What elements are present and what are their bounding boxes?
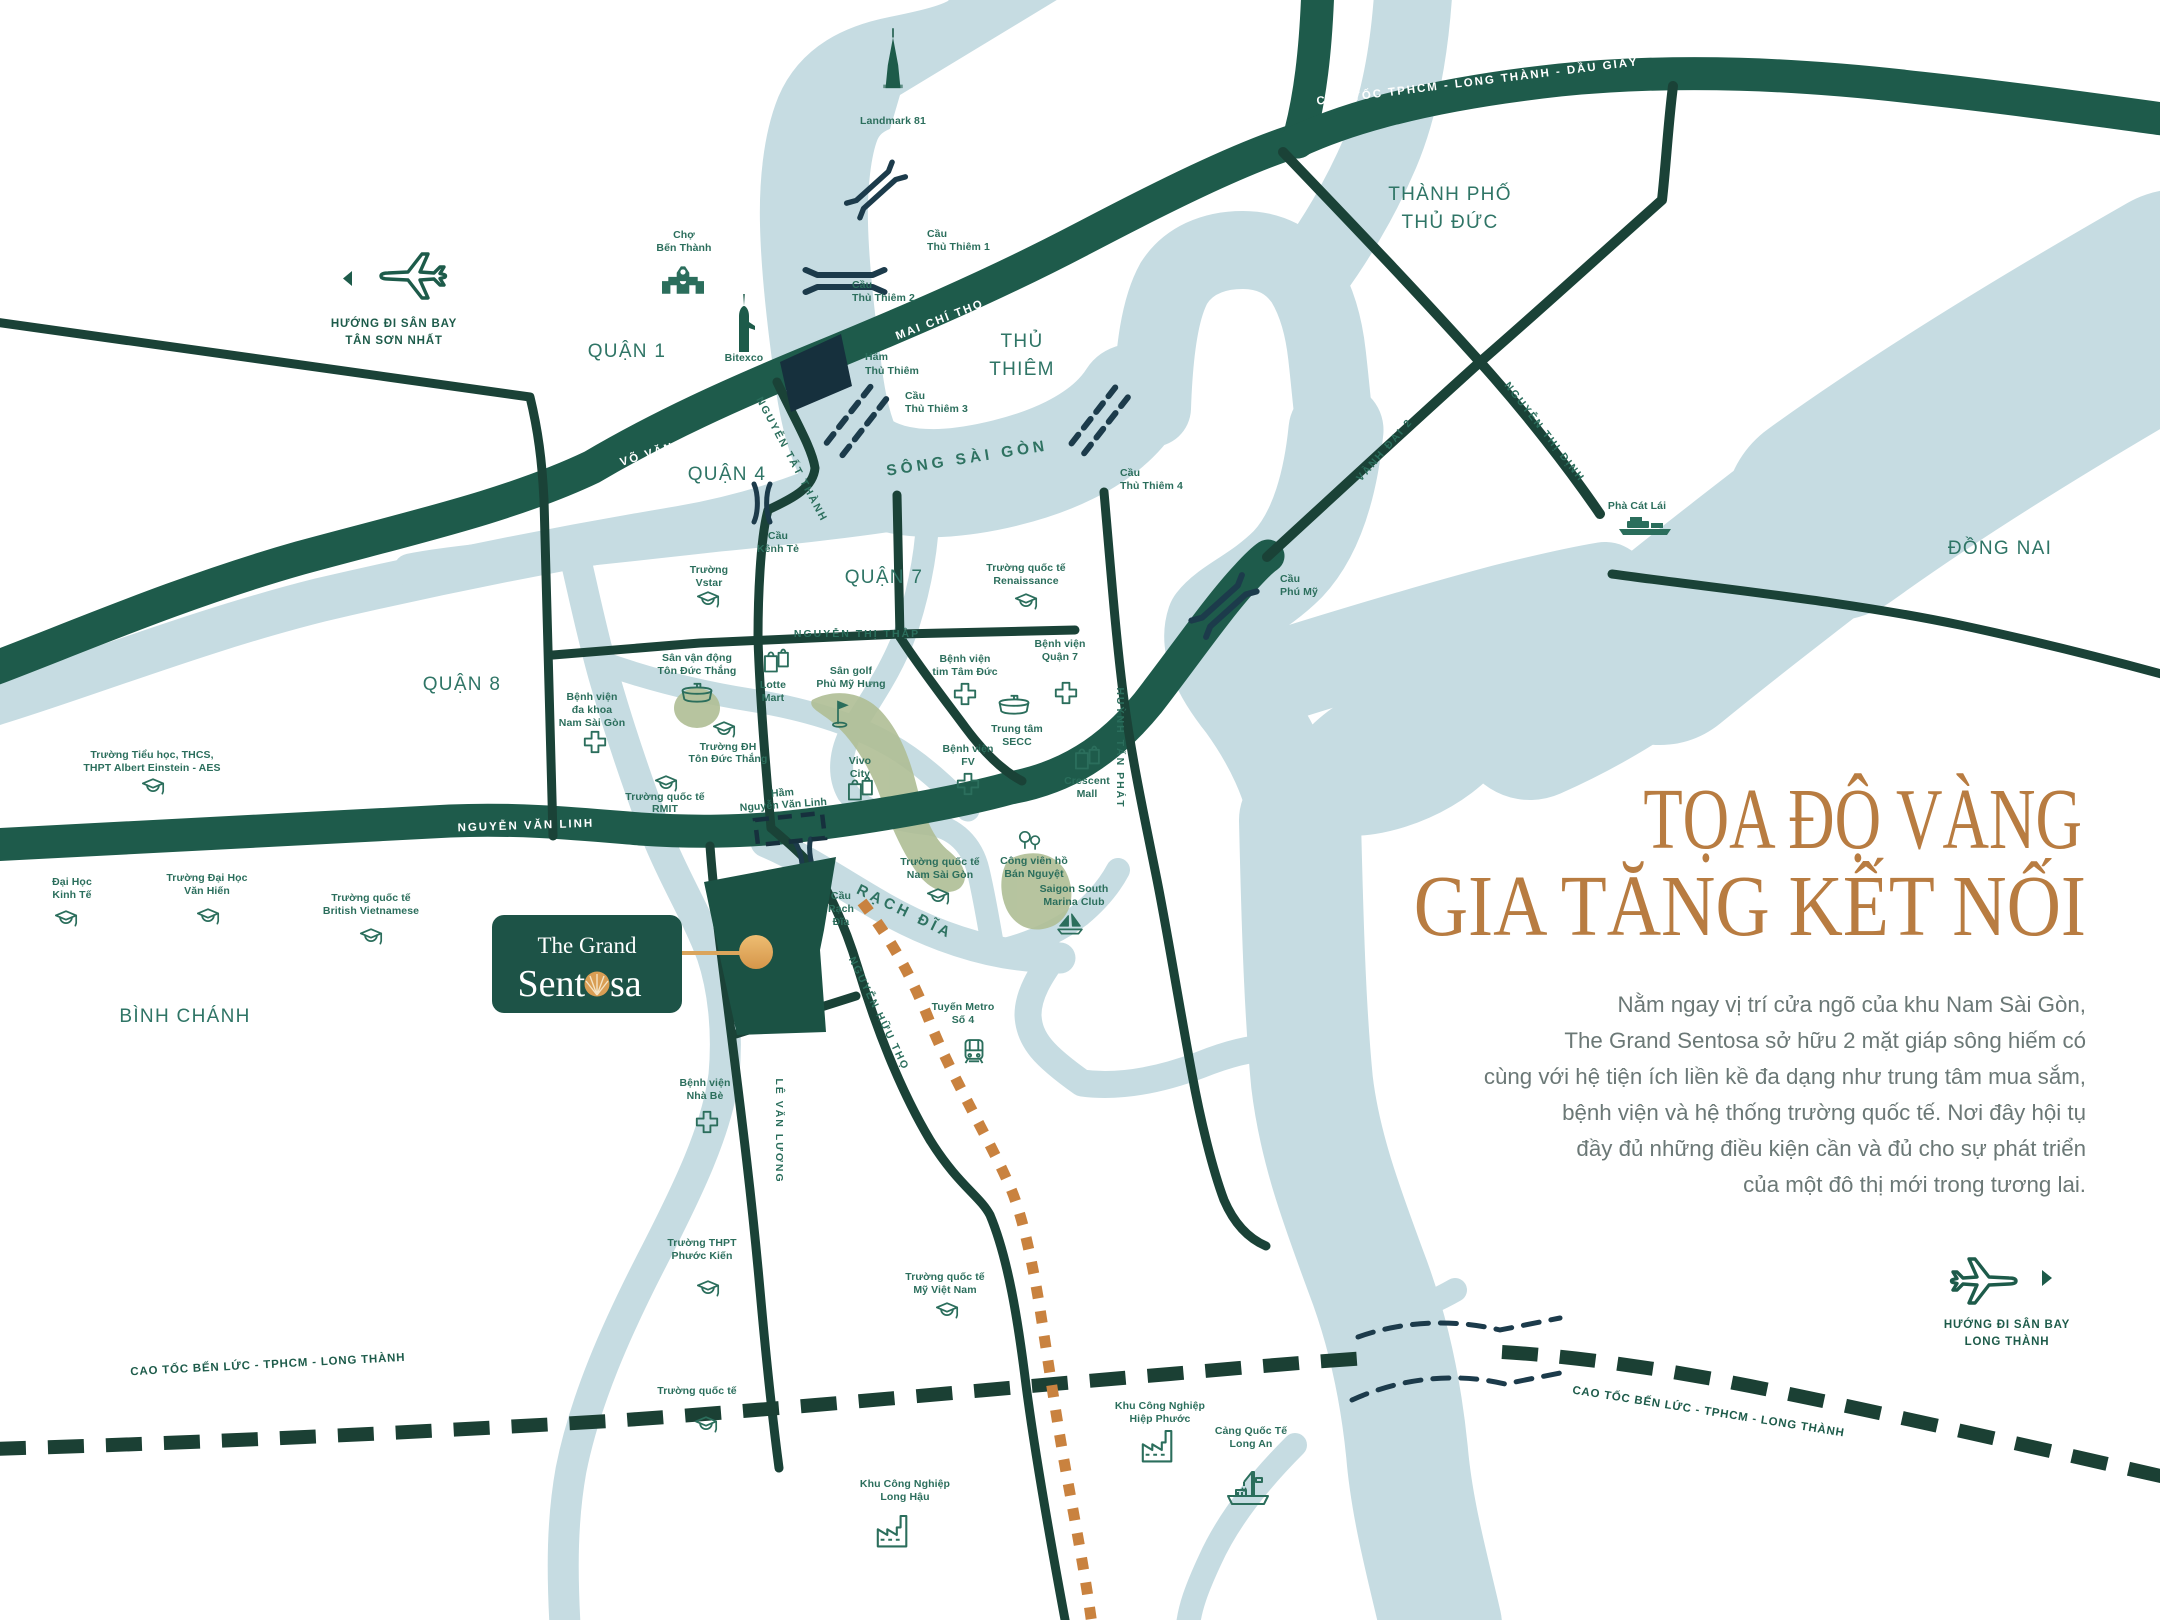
svg-text:HUỲNH TẤN PHÁT: HUỲNH TẤN PHÁT	[1114, 687, 1127, 808]
svg-text:Thủ Thiêm 4: Thủ Thiêm 4	[1120, 480, 1183, 492]
svg-text:Thủ Thiêm 2: Thủ Thiêm 2	[852, 292, 915, 304]
svg-text:của một đô thị mới trong tương: của một đô thị mới trong tương lai.	[1743, 1172, 2086, 1197]
svg-text:SECC: SECC	[1002, 736, 1032, 748]
svg-text:Trường Tiểu học, THCS,: Trường Tiểu học, THCS,	[90, 749, 213, 761]
svg-text:Bán Nguyệt: Bán Nguyệt	[1004, 868, 1064, 880]
svg-text:Phủ Mỹ Hưng: Phủ Mỹ Hưng	[816, 678, 885, 690]
svg-text:Trường quốc tế: Trường quốc tế	[900, 856, 980, 868]
svg-text:Bệnh viện: Bệnh viện	[939, 653, 990, 665]
svg-text:đầy đủ những điều kiện cần và: đầy đủ những điều kiện cần và đủ cho sự …	[1576, 1136, 2086, 1161]
svg-text:Phà Cát Lái: Phà Cát Lái	[1608, 500, 1666, 512]
svg-text:Mall: Mall	[1077, 788, 1098, 800]
svg-text:Thủ Thiêm: Thủ Thiêm	[865, 365, 919, 377]
svg-text:Saigon South: Saigon South	[1040, 883, 1109, 895]
svg-text:Thủ Thiêm 1: Thủ Thiêm 1	[927, 241, 990, 253]
svg-text:Long An: Long An	[1230, 1438, 1273, 1450]
svg-text:Tôn Đức Thắng: Tôn Đức Thắng	[658, 664, 737, 677]
svg-text:Hiệp Phước: Hiệp Phước	[1130, 1413, 1191, 1425]
svg-text:Khu Công Nghiệp: Khu Công Nghiệp	[860, 1478, 950, 1490]
svg-text:Vstar: Vstar	[696, 577, 723, 589]
svg-text:BÌNH CHÁNH: BÌNH CHÁNH	[119, 1006, 250, 1027]
svg-text:HƯỚNG ĐI SÂN BAY: HƯỚNG ĐI SÂN BAY	[1944, 1318, 2070, 1331]
svg-text:Bitexco: Bitexco	[725, 352, 764, 364]
svg-text:Chợ: Chợ	[673, 229, 695, 241]
svg-text:Cầu: Cầu	[831, 890, 851, 902]
svg-text:Sân vận động: Sân vận động	[662, 652, 732, 664]
svg-text:Marina Club: Marina Club	[1043, 896, 1104, 908]
svg-text:THPT Albert Einstein - AES: THPT Albert Einstein - AES	[83, 762, 220, 774]
svg-text:Bệnh viện: Bệnh viện	[566, 691, 617, 703]
svg-text:Trường Đại Học: Trường Đại Học	[166, 872, 247, 884]
svg-text:Số 4: Số 4	[952, 1014, 975, 1026]
svg-text:LONG THÀNH: LONG THÀNH	[1965, 1335, 2050, 1348]
svg-text:The Grand: The Grand	[538, 933, 637, 958]
svg-text:sa: sa	[610, 963, 642, 1005]
svg-text:Bệnh viện: Bệnh viện	[679, 1077, 730, 1089]
svg-text:Mỹ Việt Nam: Mỹ Việt Nam	[913, 1284, 976, 1296]
svg-text:Cầu: Cầu	[1280, 573, 1300, 585]
svg-text:Vivo: Vivo	[849, 755, 871, 767]
svg-text:Trường quốc tế: Trường quốc tế	[657, 1385, 737, 1397]
svg-text:Phú Mỹ: Phú Mỹ	[1280, 586, 1318, 598]
svg-text:NGUYỄN THỊ THẬP: NGUYỄN THỊ THẬP	[794, 627, 920, 640]
svg-text:Trường: Trường	[690, 564, 728, 576]
svg-text:Trường THPT: Trường THPT	[667, 1237, 737, 1249]
svg-text:Nằm ngay vị trí cửa ngõ của kh: Nằm ngay vị trí cửa ngõ của khu Nam Sài …	[1617, 992, 2086, 1017]
svg-text:British Vietnamese: British Vietnamese	[323, 905, 419, 917]
svg-text:bệnh viện và hệ thống trường q: bệnh viện và hệ thống trường quốc tế. Nơ…	[1562, 1100, 2086, 1125]
svg-text:Phước Kiến: Phước Kiến	[672, 1250, 733, 1262]
svg-text:cùng với hệ tiện ích liền kề đ: cùng với hệ tiện ích liền kề đa dạng như…	[1484, 1064, 2086, 1089]
svg-text:Long Hậu: Long Hậu	[880, 1491, 929, 1503]
svg-text:Kinh Tế: Kinh Tế	[52, 889, 91, 901]
svg-text:Cảng Quốc Tế: Cảng Quốc Tế	[1215, 1425, 1287, 1437]
svg-text:GIA TĂNG KẾT NỐI: GIA TĂNG KẾT NỐI	[1414, 858, 2086, 954]
svg-text:LÊ VĂN LƯƠNG: LÊ VĂN LƯƠNG	[773, 1078, 786, 1183]
svg-text:Renaissance: Renaissance	[993, 575, 1058, 587]
svg-text:THIÊM: THIÊM	[989, 358, 1055, 380]
svg-text:Quận 7: Quận 7	[1042, 651, 1078, 663]
svg-text:Trường quốc tế: Trường quốc tế	[331, 892, 411, 904]
svg-text:đa khoa: đa khoa	[572, 704, 612, 716]
svg-text:Cầu: Cầu	[852, 279, 872, 291]
svg-text:THỦ: THỦ	[1001, 330, 1044, 352]
svg-text:Văn Hiến: Văn Hiến	[184, 885, 230, 897]
svg-text:Trường ĐH: Trường ĐH	[700, 741, 757, 753]
svg-text:Mart: Mart	[762, 692, 785, 704]
svg-text:Landmark 81: Landmark 81	[860, 115, 926, 127]
svg-text:Bệnh viện: Bệnh viện	[942, 743, 993, 755]
svg-text:QUẬN 1: QUẬN 1	[588, 340, 667, 362]
svg-text:Cầu: Cầu	[905, 390, 925, 402]
svg-text:Lotte: Lotte	[760, 679, 786, 691]
svg-text:Kênh Tẻ: Kênh Tẻ	[757, 543, 799, 555]
svg-text:ĐỒNG NAI: ĐỒNG NAI	[1948, 537, 2052, 559]
svg-text:Bệnh viện: Bệnh viện	[1034, 638, 1085, 650]
svg-text:Nhà Bè: Nhà Bè	[687, 1090, 724, 1102]
svg-text:THÀNH PHỐ: THÀNH PHỐ	[1388, 183, 1512, 205]
svg-text:QUẬN 4: QUẬN 4	[688, 463, 767, 485]
svg-text:FV: FV	[961, 756, 975, 768]
svg-text:Trường quốc tế: Trường quốc tế	[625, 791, 705, 803]
svg-text:Rạch: Rạch	[828, 903, 854, 915]
svg-text:TÂN SƠN NHẤT: TÂN SƠN NHẤT	[345, 334, 442, 347]
svg-text:Sân golf: Sân golf	[830, 665, 873, 677]
svg-text:QUẬN 8: QUẬN 8	[423, 673, 502, 695]
svg-text:Đại Học: Đại Học	[52, 876, 92, 888]
svg-text:Nam Sài Gòn: Nam Sài Gòn	[559, 717, 625, 729]
svg-text:Cầu: Cầu	[768, 530, 788, 542]
svg-text:HƯỚNG ĐI SÂN BAY: HƯỚNG ĐI SÂN BAY	[331, 317, 457, 330]
svg-text:TỌA ĐỘ VÀNG: TỌA ĐỘ VÀNG	[1643, 771, 2082, 868]
svg-text:Trường quốc tế: Trường quốc tế	[986, 562, 1066, 574]
svg-text:The Grand Sentosa sở hữu 2 mặt: The Grand Sentosa sở hữu 2 mặt giáp sông…	[1564, 1028, 2086, 1053]
svg-text:Nam Sài Gòn: Nam Sài Gòn	[907, 869, 973, 881]
svg-text:THỦ ĐỨC: THỦ ĐỨC	[1401, 211, 1498, 233]
svg-text:Tuyến Metro: Tuyến Metro	[932, 1001, 995, 1013]
svg-text:QUẬN 7: QUẬN 7	[845, 566, 924, 588]
svg-text:Sent: Sent	[517, 963, 585, 1005]
svg-text:Đĩa: Đĩa	[833, 916, 850, 928]
svg-text:Trung tâm: Trung tâm	[991, 723, 1043, 735]
svg-text:Trường quốc tế: Trường quốc tế	[905, 1271, 985, 1283]
svg-text:RMIT: RMIT	[652, 803, 679, 815]
svg-text:Bến Thành: Bến Thành	[656, 242, 711, 254]
svg-text:Crescent: Crescent	[1064, 775, 1110, 787]
svg-text:Thủ Thiêm 3: Thủ Thiêm 3	[905, 403, 968, 415]
svg-text:tim Tâm Đức: tim Tâm Đức	[932, 666, 997, 678]
svg-text:Cầu: Cầu	[927, 228, 947, 240]
svg-text:Khu Công Nghiệp: Khu Công Nghiệp	[1115, 1400, 1205, 1412]
svg-text:Tôn Đức Thắng: Tôn Đức Thắng	[689, 752, 768, 765]
svg-text:Cầu: Cầu	[1120, 467, 1140, 479]
svg-text:Công viên hồ: Công viên hồ	[1000, 855, 1068, 867]
svg-text:Hầm: Hầm	[865, 351, 888, 363]
